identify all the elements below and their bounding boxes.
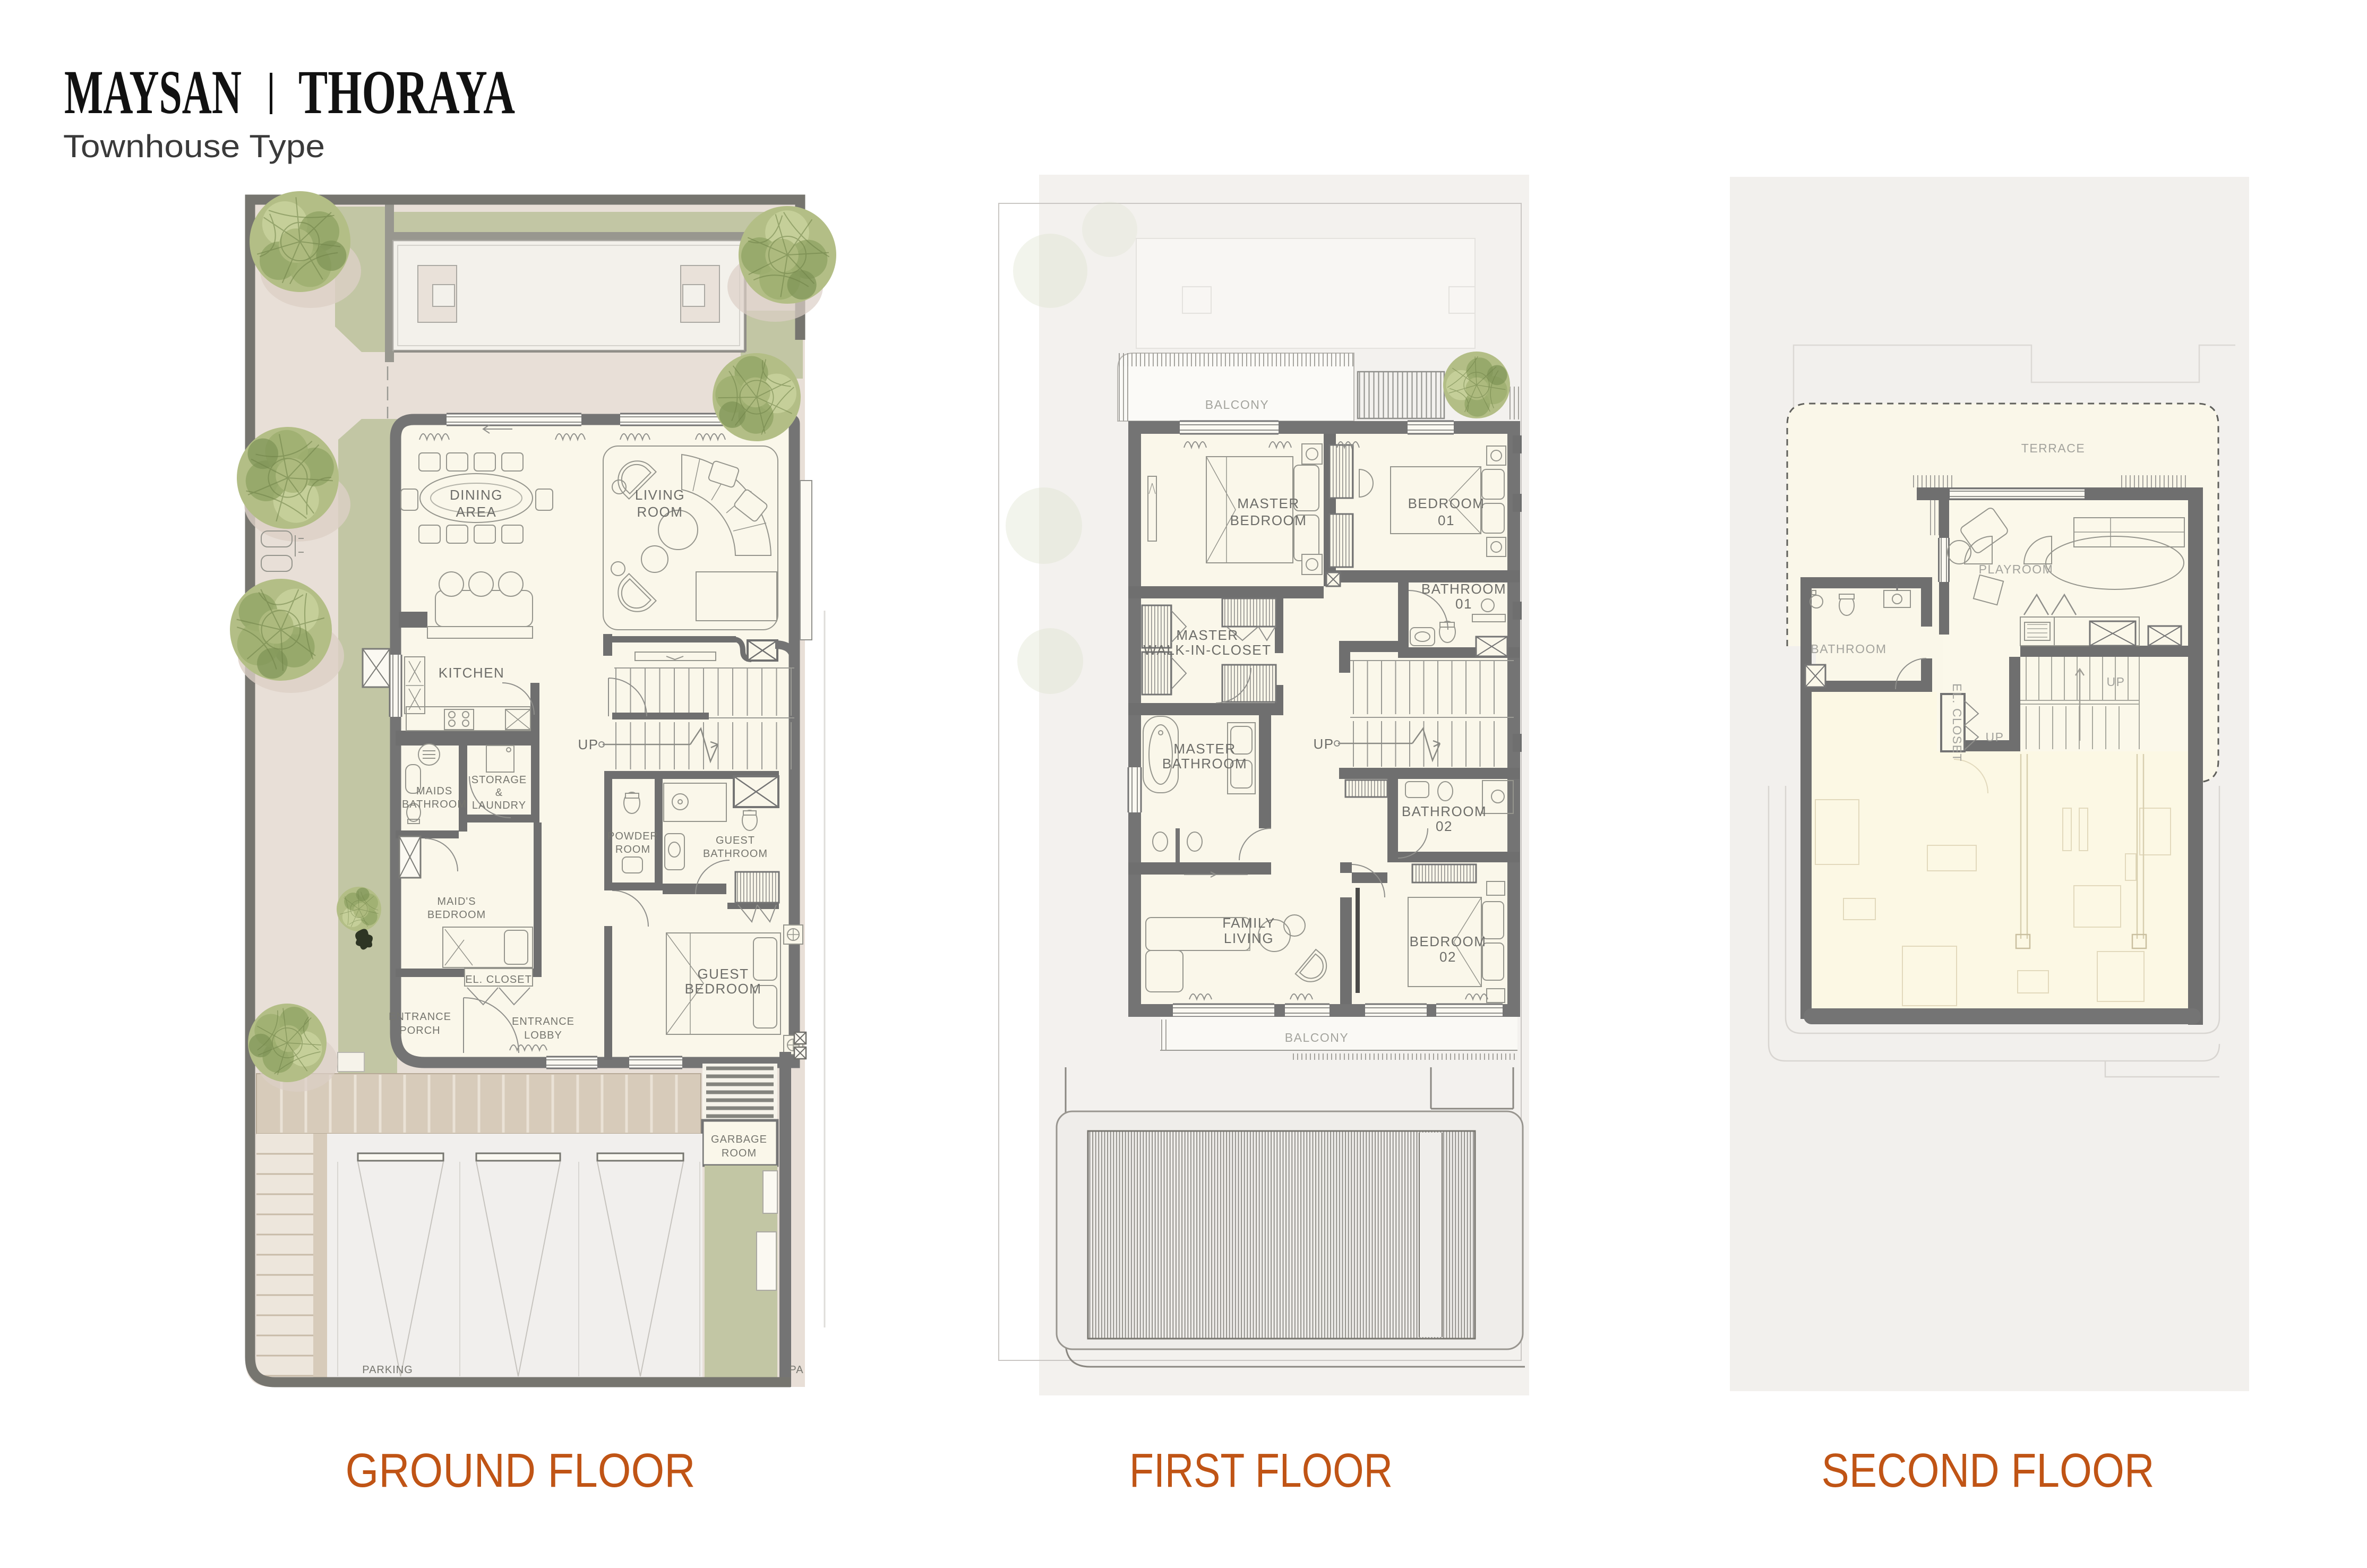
svg-text:LOBBY: LOBBY <box>524 1030 562 1041</box>
svg-text:EL. CLOSET: EL. CLOSET <box>1950 683 1964 762</box>
svg-text:PLAYROOM: PLAYROOM <box>1979 562 2054 576</box>
svg-text:UP: UP <box>1986 730 2004 744</box>
svg-text:GUEST: GUEST <box>716 835 755 846</box>
svg-text:MAID'S: MAID'S <box>437 896 476 907</box>
svg-text:LAUNDRY: LAUNDRY <box>472 800 526 811</box>
svg-text:MAIDS: MAIDS <box>416 785 452 797</box>
svg-text:POWDER: POWDER <box>607 830 658 842</box>
svg-text:EL. CLOSET: EL. CLOSET <box>465 974 532 986</box>
svg-text:UP: UP <box>578 736 598 752</box>
svg-text:LIVING: LIVING <box>635 487 685 503</box>
svg-text:MASTER: MASTER <box>1173 741 1236 757</box>
svg-text:BEDROOM: BEDROOM <box>427 909 486 921</box>
svg-text:ENTRANCE: ENTRANCE <box>389 1011 451 1023</box>
svg-text:PARKING: PARKING <box>362 1364 413 1376</box>
svg-text:MAYSAN: MAYSAN <box>64 57 242 127</box>
svg-text:BATHROOM: BATHROOM <box>1162 756 1247 772</box>
svg-text:KITCHEN: KITCHEN <box>439 665 505 681</box>
svg-text:BATHROOM: BATHROOM <box>1421 581 1506 597</box>
svg-text:BEDROOM: BEDROOM <box>685 981 762 997</box>
svg-text:01: 01 <box>1455 596 1472 612</box>
svg-text:BATHROOM: BATHROOM <box>703 848 768 860</box>
svg-text:BEDROOM: BEDROOM <box>1408 495 1485 511</box>
svg-text:WALK-IN-CLOSET: WALK-IN-CLOSET <box>1143 642 1271 658</box>
svg-text:BALCONY: BALCONY <box>1205 398 1269 412</box>
svg-text:STORAGE: STORAGE <box>471 774 527 786</box>
svg-text:GARBAGE: GARBAGE <box>711 1134 767 1145</box>
svg-text:ENTRANCE: ENTRANCE <box>512 1016 574 1027</box>
svg-text:01: 01 <box>1438 512 1455 528</box>
svg-text:SECOND FLOOR: SECOND FLOOR <box>1822 1444 2155 1497</box>
svg-text:BEDROOM: BEDROOM <box>1230 512 1307 528</box>
svg-text:GUEST: GUEST <box>697 966 749 982</box>
svg-text:MASTER: MASTER <box>1176 627 1238 643</box>
svg-text:FIRST FLOOR: FIRST FLOOR <box>1129 1444 1393 1497</box>
svg-text:BATHROOM: BATHROOM <box>402 799 467 810</box>
svg-text:MASTER: MASTER <box>1237 495 1299 511</box>
svg-text:TERRACE: TERRACE <box>2021 441 2085 455</box>
svg-text:Townhouse Type: Townhouse Type <box>63 128 325 164</box>
svg-text:&: & <box>495 787 503 799</box>
svg-text:UP: UP <box>2107 675 2125 689</box>
svg-text:LIVING: LIVING <box>1224 930 1274 946</box>
svg-text:BEDROOM: BEDROOM <box>1410 933 1487 949</box>
svg-text:BATHROOM: BATHROOM <box>1811 642 1886 656</box>
svg-text:GROUND FLOOR: GROUND FLOOR <box>346 1444 696 1497</box>
svg-text:BALCONY: BALCONY <box>1285 1031 1349 1044</box>
svg-text:AREA: AREA <box>456 504 497 520</box>
svg-text:02: 02 <box>1439 949 1456 965</box>
svg-text:FAMILY: FAMILY <box>1222 915 1275 931</box>
svg-text:ROOM: ROOM <box>637 504 683 520</box>
svg-text:ROOM: ROOM <box>615 844 650 855</box>
svg-text:PORCH: PORCH <box>399 1025 440 1036</box>
svg-text:02: 02 <box>1436 818 1453 834</box>
svg-text:ROOM: ROOM <box>722 1147 757 1159</box>
svg-text:BATHROOM: BATHROOM <box>1402 803 1487 819</box>
svg-text:DINING: DINING <box>450 487 503 503</box>
svg-text:THORAYA: THORAYA <box>298 57 515 127</box>
svg-text:PA: PA <box>789 1364 803 1376</box>
svg-text:UP: UP <box>1313 736 1334 752</box>
